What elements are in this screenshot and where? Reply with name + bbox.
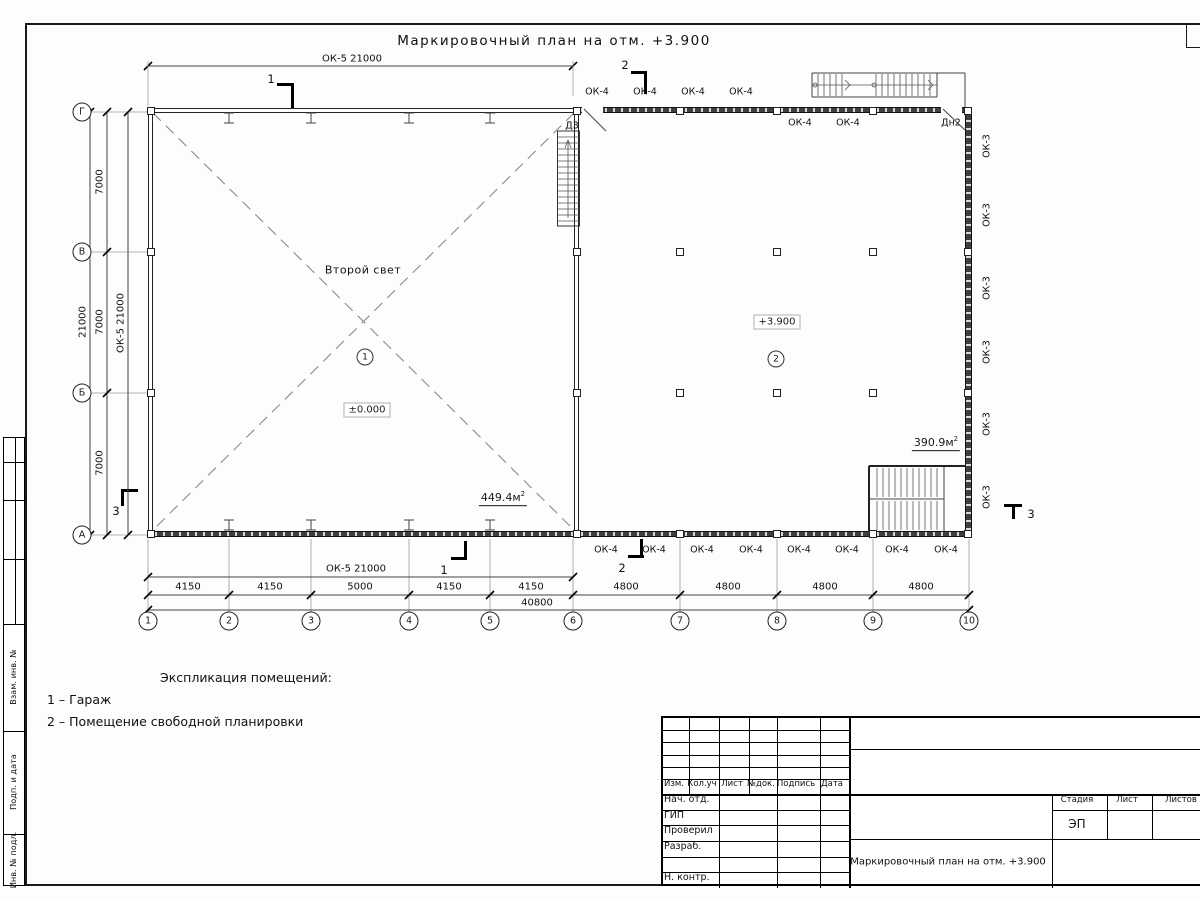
dim-left-2: 7000 <box>95 450 106 475</box>
axis-bubble-10: 10 <box>960 612 979 631</box>
titleblock-sign-row: Разраб. <box>664 841 701 852</box>
axis-bubble-2: 2 <box>220 612 239 631</box>
window-mark-ok4: ОК-4 <box>585 87 609 98</box>
window-mark-ok4: ОК-4 <box>835 545 859 556</box>
dim-top-window: ОК-5 21000 <box>322 54 382 65</box>
axis-bubble-Б: Б <box>73 384 92 403</box>
section-2-digit-bottom: 2 <box>618 561 625 575</box>
window-mark-ok4: ОК-4 <box>885 545 909 556</box>
axis-bubble-А: А <box>73 526 92 545</box>
room1-area-value: 449.4м <box>481 491 521 504</box>
titleblock-stage-value: ЭП <box>1068 817 1085 831</box>
drawing-title: Маркировочный план на отм. +3.900 <box>397 33 711 49</box>
room1-name: Второй свет <box>325 264 401 277</box>
dim-bottom-total: 40800 <box>521 598 553 609</box>
dim-bottom-8: 4800 <box>908 582 933 593</box>
axis-bubble-9: 9 <box>864 612 883 631</box>
room2-area: 390.9м2 <box>912 435 960 451</box>
dim-bottom-4: 4150 <box>518 582 543 593</box>
side-stamp-label: Взам. инв. № <box>8 649 18 705</box>
dim-bottom-window: ОК-5 21000 <box>326 564 386 575</box>
axis-bubble-5: 5 <box>481 612 500 631</box>
axis-bubble-3: 3 <box>302 612 321 631</box>
axis-bubble-8: 8 <box>768 612 787 631</box>
drawing-sheet: Маркировочный план на отм. +3.900 Второй… <box>0 0 1200 900</box>
door-mark-dn2: Дн2 <box>941 118 961 129</box>
window-mark-ok4: ОК-4 <box>787 545 811 556</box>
window-mark-ok4: ОК-4 <box>739 545 763 556</box>
room1-area-sup: 2 <box>521 490 525 498</box>
side-stamp-label: Подп. и дата <box>8 754 18 810</box>
window-mark-ok3: ОК-3 <box>982 203 993 227</box>
window-mark-ok4: ОК-4 <box>836 118 860 129</box>
window-mark-ok4: ОК-4 <box>934 545 958 556</box>
legend-item-2: 2 – Помещение свободной планировки <box>47 714 303 729</box>
titleblock-rev-header: №док. <box>747 779 775 789</box>
section-1-digit-top: 1 <box>267 72 274 86</box>
window-mark-ok4: ОК-4 <box>788 118 812 129</box>
titleblock-rev-header: Изм. <box>664 779 684 789</box>
dim-bottom-5: 4800 <box>613 582 638 593</box>
window-mark-ok3: ОК-3 <box>982 276 993 300</box>
dim-bottom-2: 5000 <box>347 582 372 593</box>
titleblock-sign-row: Проверил <box>664 825 713 836</box>
axis-bubble-7: 7 <box>671 612 690 631</box>
legend-header: Экспликация помещений: <box>160 670 332 685</box>
section-2-digit-top: 2 <box>621 58 628 72</box>
window-mark-ok3: ОК-3 <box>982 485 993 509</box>
dim-bottom-3: 4150 <box>436 582 461 593</box>
titleblock-rev-header: Лист <box>721 779 743 789</box>
room2-area-sup: 2 <box>954 435 958 443</box>
titleblock-doc-title: Маркировочный план на отм. +3.900 <box>850 857 1046 868</box>
axis-bubble-6: 6 <box>564 612 583 631</box>
section-1-digit-bottom: 1 <box>440 563 447 577</box>
dim-left-0: 7000 <box>95 169 106 194</box>
titleblock-stage-header: Стадия <box>1061 795 1094 805</box>
dim-left-window: ОК-5 21000 <box>116 293 127 353</box>
dim-bottom-0: 4150 <box>175 582 200 593</box>
dim-left-1: 7000 <box>95 309 106 334</box>
window-mark-ok3: ОК-3 <box>982 340 993 364</box>
door-mark-d3: Д3 <box>565 121 578 132</box>
titleblock-stage-header: Лист <box>1116 795 1138 805</box>
titleblock-rev-header: Дата <box>821 779 843 789</box>
window-mark-ok4: ОК-4 <box>690 545 714 556</box>
window-mark-ok4: ОК-4 <box>642 545 666 556</box>
titleblock-rev-header: Подпись <box>777 779 815 789</box>
window-mark-ok4: ОК-4 <box>681 87 705 98</box>
titleblock-sign-row: Н. контр. <box>664 872 710 883</box>
dim-left-total: 21000 <box>78 306 89 338</box>
side-stamp-label: Инв. № подл. <box>8 832 18 889</box>
titleblock-sign-row: Нач. отд. <box>664 794 710 805</box>
room1-number-badge: 1 <box>357 349 374 366</box>
window-mark-ok4: ОК-4 <box>729 87 753 98</box>
titleblock-rev-header: Кол.уч <box>687 779 716 789</box>
axis-bubble-1: 1 <box>139 612 158 631</box>
room1-area: 449.4м2 <box>479 490 527 506</box>
section-3-digit-right: 3 <box>1027 507 1034 521</box>
axis-bubble-В: В <box>73 243 92 262</box>
axis-bubble-4: 4 <box>400 612 419 631</box>
titleblock-sign-row: ГИП <box>664 810 684 821</box>
room2-area-value: 390.9м <box>914 436 954 449</box>
titleblock-stage-header: Листов <box>1165 795 1197 805</box>
dim-bottom-7: 4800 <box>812 582 837 593</box>
window-mark-ok3: ОК-3 <box>982 412 993 436</box>
window-mark-ok4: ОК-4 <box>594 545 618 556</box>
plan-labels: Маркировочный план на отм. +3.900 Второй… <box>0 0 1200 900</box>
axis-bubble-Г: Г <box>73 103 92 122</box>
room2-number-badge: 2 <box>768 351 785 368</box>
window-mark-ok3: ОК-3 <box>982 134 993 158</box>
dim-bottom-6: 4800 <box>715 582 740 593</box>
section-3-digit-left: 3 <box>112 504 119 518</box>
room2-level-mark: +3.900 <box>753 315 800 330</box>
legend-item-1: 1 – Гараж <box>47 692 111 707</box>
room1-level-mark: ±0.000 <box>343 403 390 418</box>
window-mark-ok4: ОК-4 <box>633 87 657 98</box>
dim-bottom-1: 4150 <box>257 582 282 593</box>
